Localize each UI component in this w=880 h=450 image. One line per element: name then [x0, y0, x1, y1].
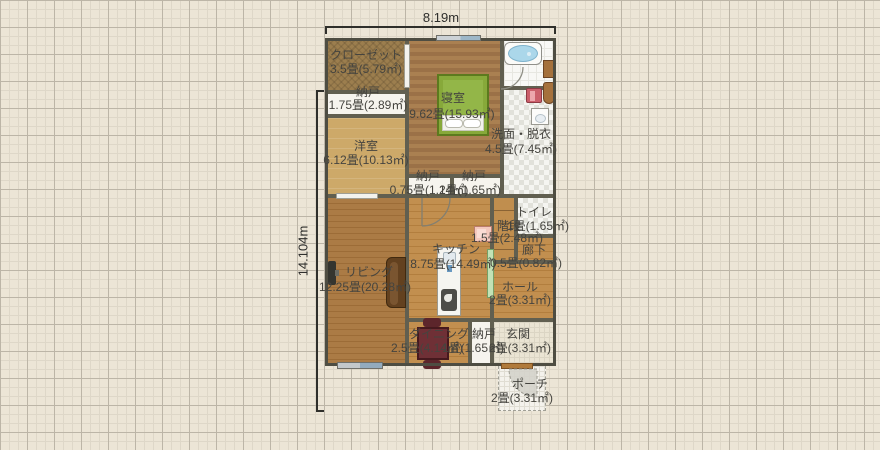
chair-icon[interactable] [423, 318, 441, 327]
label-corridor-area: 0.5畳(0.82㎡) [490, 257, 562, 270]
label-yoshitsu-name: 洋室 [354, 140, 378, 153]
bathtub-drain [527, 52, 531, 56]
label-living-name: リビング [345, 266, 393, 279]
label-porch-name: ポーチ [512, 378, 548, 391]
dimension-width-label: 8.19m [423, 10, 459, 25]
label-washroom-name: 洗面・脱衣 [491, 128, 551, 141]
tv-stand [335, 270, 339, 276]
toilet-fixture-icon[interactable] [543, 82, 555, 104]
dimension-line-horizontal [325, 26, 556, 34]
washing-machine-lid [530, 91, 535, 101]
bathtub-icon[interactable] [504, 42, 542, 65]
label-washroom-area: 4.5畳(7.45㎡) [485, 143, 557, 156]
label-storage-a-area: 1.75畳(2.89㎡) [329, 99, 408, 112]
label-storage-b-name: 納戸 [416, 170, 440, 183]
label-bedroom-area: 9.62畳(15.93㎡) [409, 108, 494, 121]
floor-plan-canvas: 8.19m 14.104m クローゼット 3.5畳(5.79㎡) 納戸 1.75… [0, 0, 880, 450]
vanity-icon[interactable] [543, 60, 555, 78]
washbasin-bowl [535, 114, 546, 123]
label-bedroom-name: 寝室 [441, 92, 465, 105]
label-hall-area: 2畳(3.31㎡) [489, 294, 551, 307]
stove-icon [441, 289, 457, 311]
label-porch-area: 2畳(3.31㎡) [491, 392, 553, 405]
label-toilet-name: トイレ [516, 206, 552, 219]
label-kitchen-area: 8.75畳(14.49㎡) [410, 258, 495, 271]
door-arc-icon [421, 197, 451, 227]
label-genkan-name: 玄関 [506, 328, 530, 341]
door-arc-icon [500, 66, 524, 90]
window [337, 362, 383, 369]
label-living-area: 12.25畳(20.28㎡) [319, 281, 411, 294]
label-storage-d-name: 納戸 [472, 328, 496, 341]
label-closet-name: クローゼット [330, 49, 402, 62]
dimension-line-vertical [316, 90, 324, 412]
chair-icon[interactable] [423, 360, 441, 369]
stove-burner [444, 294, 452, 302]
label-closet-area: 3.5畳(5.79㎡) [330, 63, 402, 76]
window [436, 35, 481, 41]
washbasin-icon[interactable] [531, 108, 549, 125]
label-yoshitsu-area: 6.12畳(10.13㎡) [323, 154, 408, 167]
door-opening [404, 44, 410, 88]
label-storage-c-name: 納戸 [462, 170, 486, 183]
washing-machine-icon[interactable] [526, 88, 542, 103]
label-genkan-area: 2畳(3.31㎡) [489, 342, 551, 355]
label-kitchen-name: キッチン [432, 243, 480, 256]
dimension-height-label: 14.104m [296, 226, 311, 277]
door-opening [336, 193, 378, 199]
bed-icon[interactable] [437, 74, 489, 136]
label-dining-name: ダイニング [409, 328, 469, 341]
bathtub-basin [508, 45, 538, 62]
label-storage-c-area: 1畳(1.65㎡) [439, 184, 501, 197]
